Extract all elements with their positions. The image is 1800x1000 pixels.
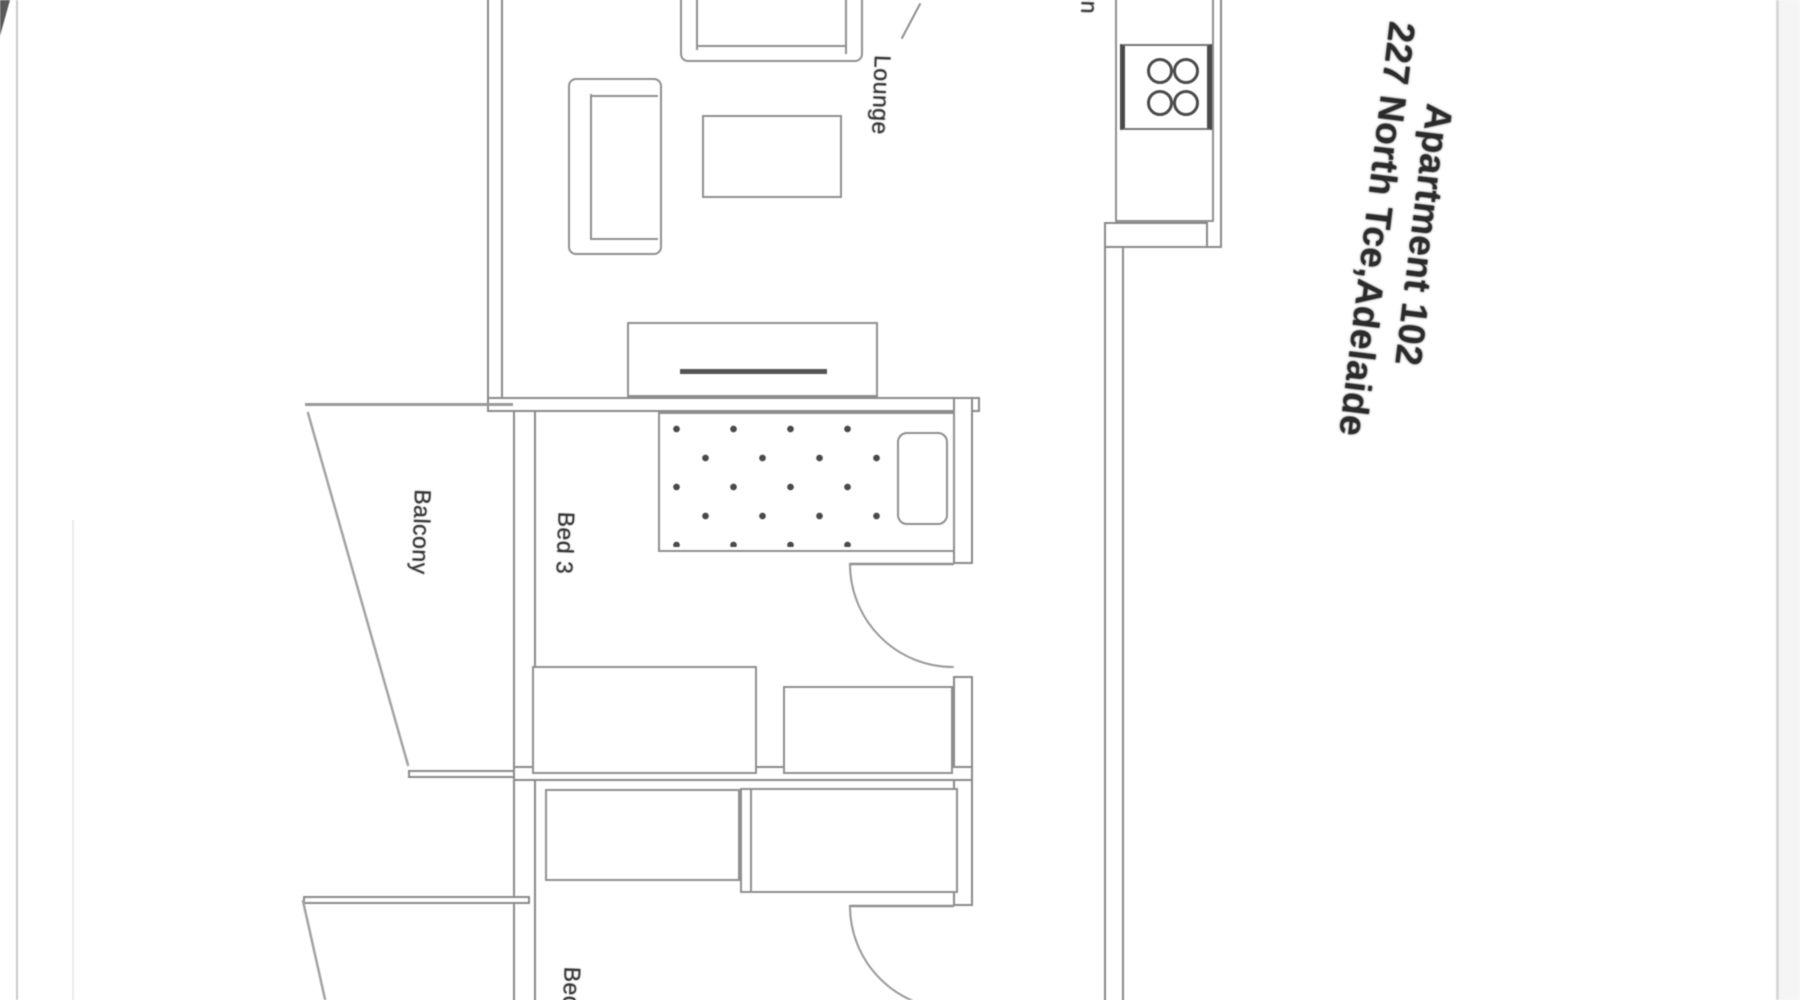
entry-mark [902,4,920,38]
door-swing-icon [850,564,953,667]
plan-lines-layer [0,0,1800,1000]
floor-plan-scan: Lounge Balcony Bed 3 Bed 2 Kitchen Apart… [0,0,1800,1000]
lounge-label: Lounge [866,55,896,136]
floor-plan-drawing: Lounge Balcony Bed 3 Bed 2 Kitchen Apart… [0,0,1800,1000]
door-swing-icon [850,906,953,1000]
balcony-slant-edge [308,413,408,765]
bed2-label: Bed 2 [556,966,585,1000]
kitchen-label: Kitchen [1075,0,1105,15]
bed3-label: Bed 3 [550,511,579,575]
balcony2-slant-edge [303,901,327,1000]
balcony-label: Balcony [406,489,436,575]
